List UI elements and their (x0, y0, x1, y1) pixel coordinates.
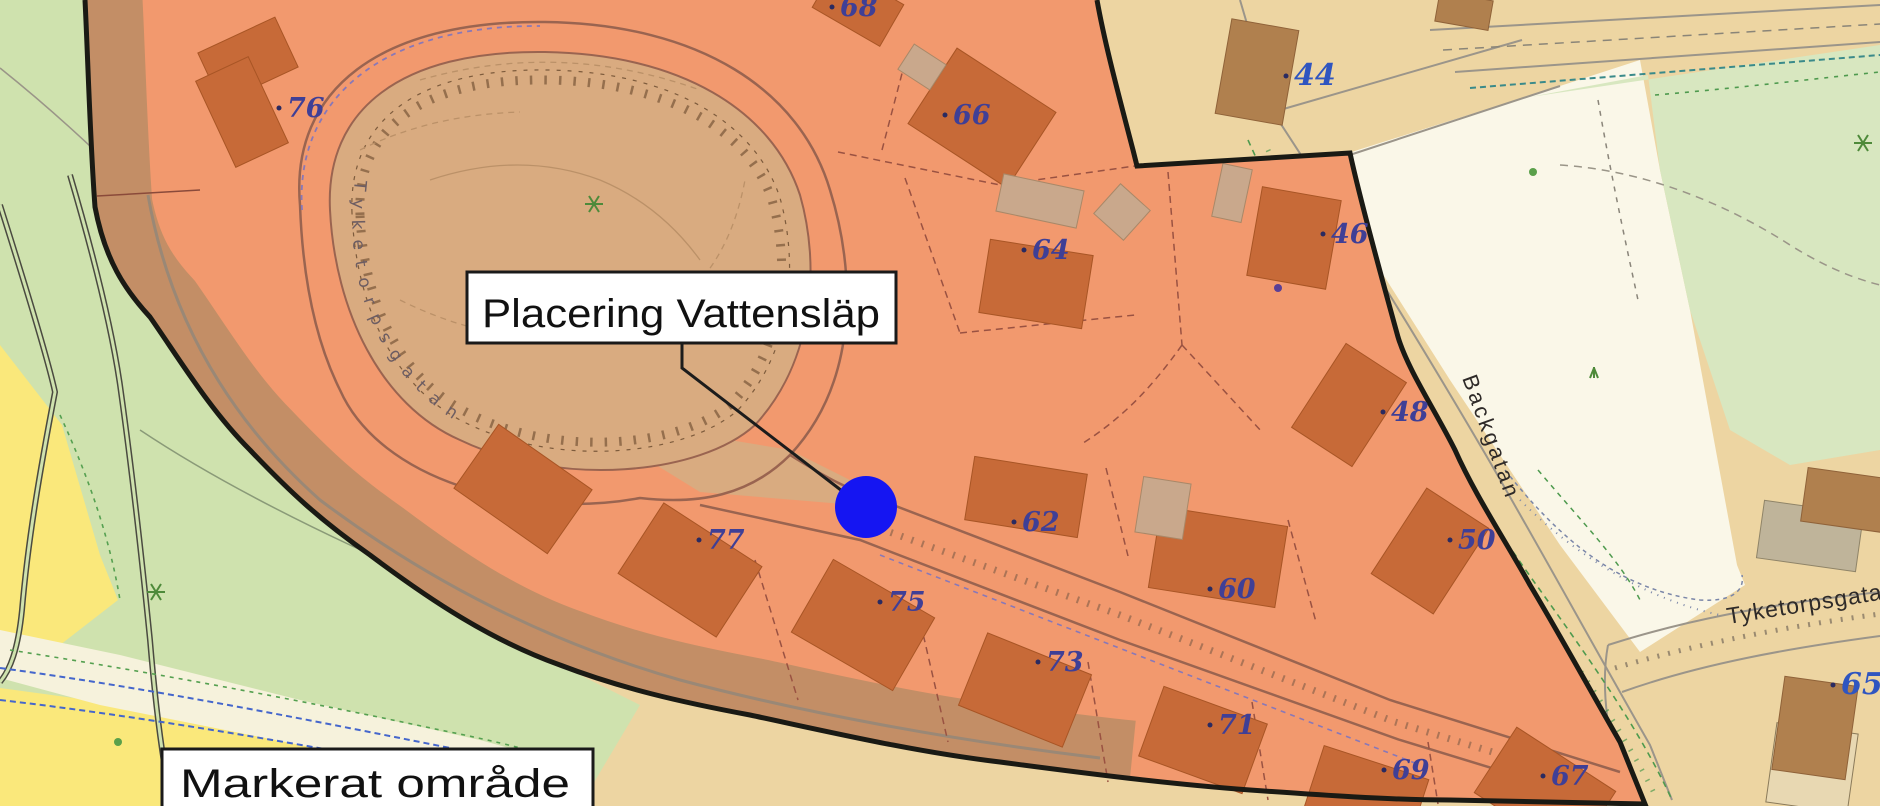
bush-dot (114, 738, 122, 746)
house-number-label: 50 (1458, 525, 1496, 556)
house-number-label: 64 (1032, 235, 1070, 266)
house-number-label: 77 (707, 525, 745, 556)
marked-area-label-box: Markerat område (162, 749, 593, 806)
house-number-label: 76 (287, 93, 325, 124)
house-number-label: 68 (840, 0, 878, 23)
building (1247, 187, 1341, 290)
map-canvas: Tyketorpsgatan Backgatan Tyketorpsgatan … (0, 0, 1880, 806)
house-number-label: 60 (1218, 574, 1256, 605)
house-number-label: 66 (953, 100, 991, 131)
house-number-label: 73 (1046, 647, 1084, 678)
house-number-label: 48 (1391, 397, 1429, 428)
house-number-label: 67 (1551, 761, 1589, 792)
house-number-label: 69 (1392, 755, 1430, 786)
house-number-label: 75 (888, 587, 926, 618)
water-trailer-marker (835, 476, 897, 538)
shed (1135, 477, 1191, 540)
marked-area-label-text: Markerat område (180, 762, 570, 806)
house-number-label: 71 (1218, 710, 1256, 741)
house-number-label: 44 (1294, 58, 1336, 93)
house-number-label: 46 (1331, 219, 1369, 250)
placement-label-box: Placering Vattensläp (467, 272, 896, 343)
placement-label-text: Placering Vattensläp (482, 292, 880, 336)
house-number-label: 62 (1022, 507, 1060, 538)
map-viewport[interactable]: Tyketorpsgatan Backgatan Tyketorpsgatan … (0, 0, 1880, 806)
building-brown (1801, 468, 1880, 533)
house-number-label: 65 (1841, 667, 1880, 702)
bush-dot (1529, 168, 1537, 176)
